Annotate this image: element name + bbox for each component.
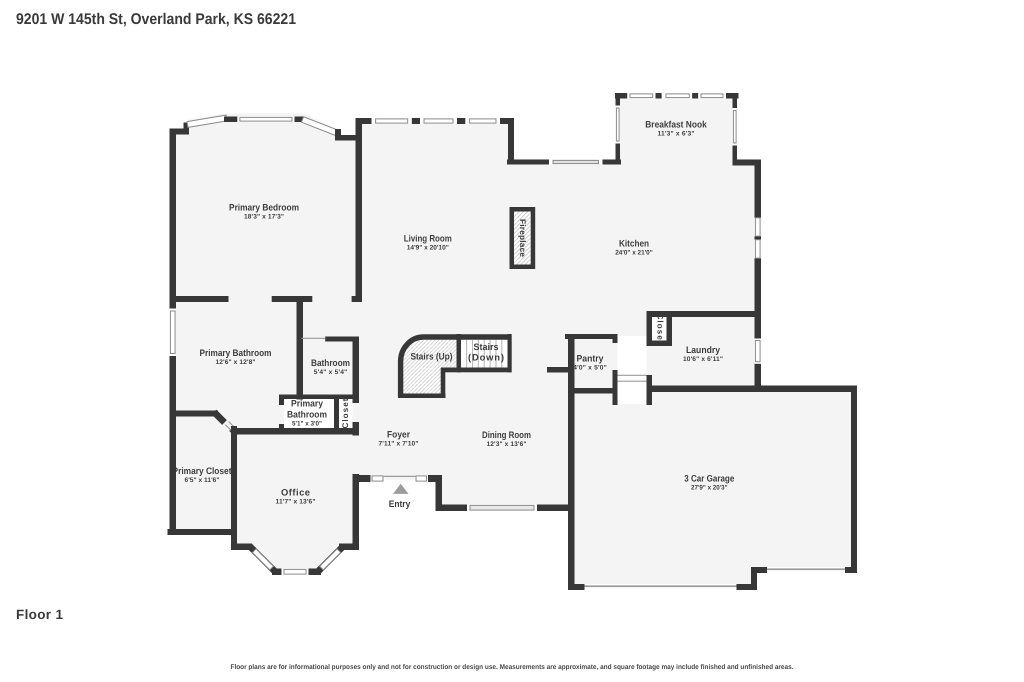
svg-text:Closet: Closet <box>655 314 664 344</box>
svg-text:12'3" x 13'6": 12'3" x 13'6" <box>487 441 527 448</box>
svg-text:Primary: Primary <box>291 398 324 409</box>
svg-text:3 Car Garage: 3 Car Garage <box>684 473 734 484</box>
svg-text:14'9" x 20'10": 14'9" x 20'10" <box>407 245 449 252</box>
svg-text:18'3" x 17'3": 18'3" x 17'3" <box>244 213 284 220</box>
svg-text:Bathroom: Bathroom <box>287 409 327 420</box>
svg-text:Floor 1: Floor 1 <box>16 607 63 622</box>
svg-text:Primary Bathroom: Primary Bathroom <box>200 347 272 358</box>
svg-text:27'9" x 20'3": 27'9" x 20'3" <box>691 485 728 492</box>
svg-text:12'6" x 12'8": 12'6" x 12'8" <box>216 359 256 366</box>
svg-text:Entry: Entry <box>389 498 411 509</box>
svg-text:Living Room: Living Room <box>404 233 452 244</box>
svg-text:5'1" x 3'0": 5'1" x 3'0" <box>292 421 322 428</box>
svg-text:(Down): (Down) <box>468 352 504 363</box>
svg-text:Primary Bedroom: Primary Bedroom <box>229 201 299 212</box>
svg-text:6'5" x 11'6": 6'5" x 11'6" <box>185 477 220 484</box>
svg-text:7'11" x 7'10": 7'11" x 7'10" <box>379 441 419 448</box>
svg-text:Primary Closet: Primary Closet <box>173 465 232 476</box>
svg-text:11'3" x 6'3": 11'3" x 6'3" <box>658 131 695 138</box>
svg-text:Office: Office <box>281 487 310 498</box>
svg-text:9201 W 145th St, Overland Park: 9201 W 145th St, Overland Park, KS 66221 <box>16 11 296 28</box>
svg-text:Dining Room: Dining Room <box>482 429 531 440</box>
svg-text:Floor plans are for informatio: Floor plans are for informational purpos… <box>231 664 794 671</box>
svg-text:Stairs (Up): Stairs (Up) <box>411 351 453 362</box>
svg-text:Foyer: Foyer <box>387 429 410 440</box>
svg-text:Breakfast Nook: Breakfast Nook <box>645 119 707 130</box>
svg-text:Fireplace: Fireplace <box>518 219 527 257</box>
svg-text:11'7" x 13'6": 11'7" x 13'6" <box>276 499 316 506</box>
svg-text:Closet: Closet <box>341 398 350 428</box>
svg-text:Stairs: Stairs <box>474 341 499 352</box>
svg-text:Bathroom: Bathroom <box>311 357 350 368</box>
svg-text:24'0" x 21'0": 24'0" x 21'0" <box>615 249 653 256</box>
svg-text:4'0" x 5'0": 4'0" x 5'0" <box>573 365 607 372</box>
svg-text:Kitchen: Kitchen <box>619 237 649 248</box>
svg-text:10'6" x 6'11": 10'6" x 6'11" <box>683 356 723 363</box>
svg-text:5'4" x 5'4": 5'4" x 5'4" <box>314 369 348 376</box>
svg-text:Laundry: Laundry <box>686 344 721 355</box>
svg-text:Pantry: Pantry <box>577 353 605 364</box>
